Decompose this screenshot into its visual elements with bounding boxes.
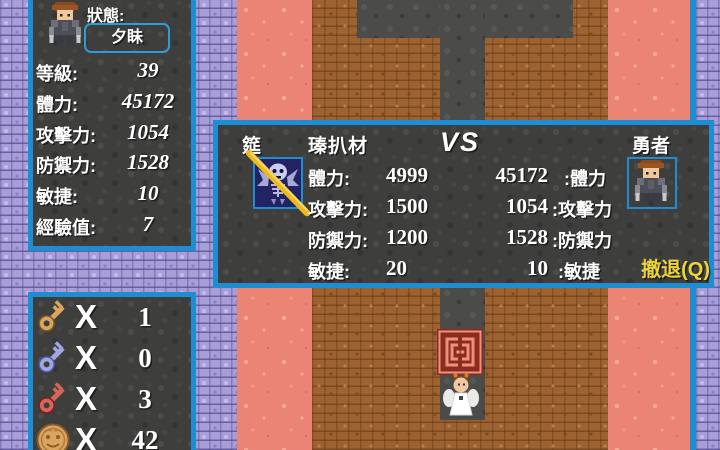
attack-slash-icon: [243, 147, 313, 219]
stat-row-agility: 敏捷: 10: [33, 181, 191, 212]
stat-value: 39: [113, 58, 183, 83]
hero-sprite-icon: [629, 159, 673, 207]
stat-label: 防禦力:: [36, 152, 96, 178]
door-ornament-icon: [437, 329, 483, 375]
hero-title: 勇者: [632, 131, 670, 158]
hero-portrait-box: [627, 157, 677, 209]
hero-sprite-icon: [45, 1, 85, 49]
hero-avatar: [45, 1, 85, 49]
battle-dialog: 筵 瑧扒材 VS 勇者: [213, 120, 714, 288]
stat-label: 等級:: [36, 60, 78, 86]
red-key-icon: [35, 381, 71, 422]
stat-value: 1528: [448, 225, 548, 250]
stat-value: 4999: [386, 163, 428, 188]
gold-coin-icon: [35, 422, 71, 450]
stat-label: :攻擊力: [552, 196, 612, 222]
stat-value: 1054: [448, 194, 548, 219]
inventory-panel: X 1 X 0: [28, 292, 196, 450]
red-door-tile[interactable]: [437, 329, 483, 375]
gold-key-icon: [35, 299, 71, 340]
stat-value: 20: [386, 256, 407, 281]
stat-label: 防禦力:: [308, 227, 368, 253]
stat-value: 10: [448, 256, 548, 281]
inventory-row-blue-key: X 0: [33, 338, 191, 379]
vs-label: VS: [440, 127, 480, 158]
status-rows: 等級: 39 體力: 45172 攻擊力: 1054 防禦力: 1528 敏捷:…: [33, 58, 191, 243]
hero-stat-defense: 1528 :防禦力: [448, 224, 698, 255]
fairy-npc[interactable]: [442, 372, 480, 418]
monster-name: 瑧扒材: [308, 131, 368, 158]
times-symbol: X: [75, 420, 97, 450]
inventory-row-gold-key: X 1: [33, 297, 191, 338]
hero-name: 夕眛: [86, 25, 168, 50]
times-symbol: X: [75, 297, 97, 337]
stat-value: 1200: [386, 225, 428, 250]
stat-value: 45172: [113, 89, 183, 114]
stat-row-level: 等級: 39: [33, 58, 191, 89]
stat-label: 敏捷:: [36, 183, 78, 209]
stat-row-defense: 防禦力: 1528: [33, 150, 191, 181]
fairy-npc-icon: [442, 372, 480, 418]
stat-row-exp: 經驗值: 7: [33, 212, 191, 243]
stat-value: 45172: [448, 163, 548, 188]
stat-value: 1528: [113, 150, 183, 175]
stat-value: 1500: [386, 194, 428, 219]
stat-label: :體力: [564, 165, 606, 191]
inventory-row-gold-coin: X 42: [33, 420, 191, 450]
hero-name-box: 夕眛: [84, 23, 170, 53]
stat-label: 經驗值:: [36, 214, 96, 240]
inventory-row-red-key: X 3: [33, 379, 191, 420]
stat-row-attack: 攻擊力: 1054: [33, 120, 191, 151]
times-symbol: X: [75, 338, 97, 378]
blue-key-icon: [35, 340, 71, 381]
stat-value: 7: [113, 212, 183, 237]
stat-label: 攻擊力:: [308, 196, 368, 222]
item-count: 42: [113, 425, 177, 450]
stat-label: 體力:: [36, 91, 78, 117]
stat-label: 體力:: [308, 165, 350, 191]
item-count: 1: [113, 302, 177, 333]
times-symbol: X: [75, 379, 97, 419]
stat-label: 攻擊力:: [36, 122, 96, 148]
stat-label: :敏捷: [558, 258, 600, 284]
stat-row-hp: 體力: 45172: [33, 89, 191, 120]
stat-value: 1054: [113, 120, 183, 145]
item-count: 0: [113, 343, 177, 374]
retreat-button[interactable]: 撤退(Q): [622, 253, 710, 282]
game-screen: 狀態: 夕眛 等級: 39 體力: 45172 攻擊力: 1054 防禦力: 1…: [0, 0, 720, 450]
stat-label: 敏捷:: [308, 258, 350, 284]
stat-label: :防禦力: [552, 227, 612, 253]
item-count: 3: [113, 384, 177, 415]
stat-value: 10: [113, 181, 183, 206]
status-panel: 狀態: 夕眛 等級: 39 體力: 45172 攻擊力: 1054 防禦力: 1…: [28, 0, 196, 251]
